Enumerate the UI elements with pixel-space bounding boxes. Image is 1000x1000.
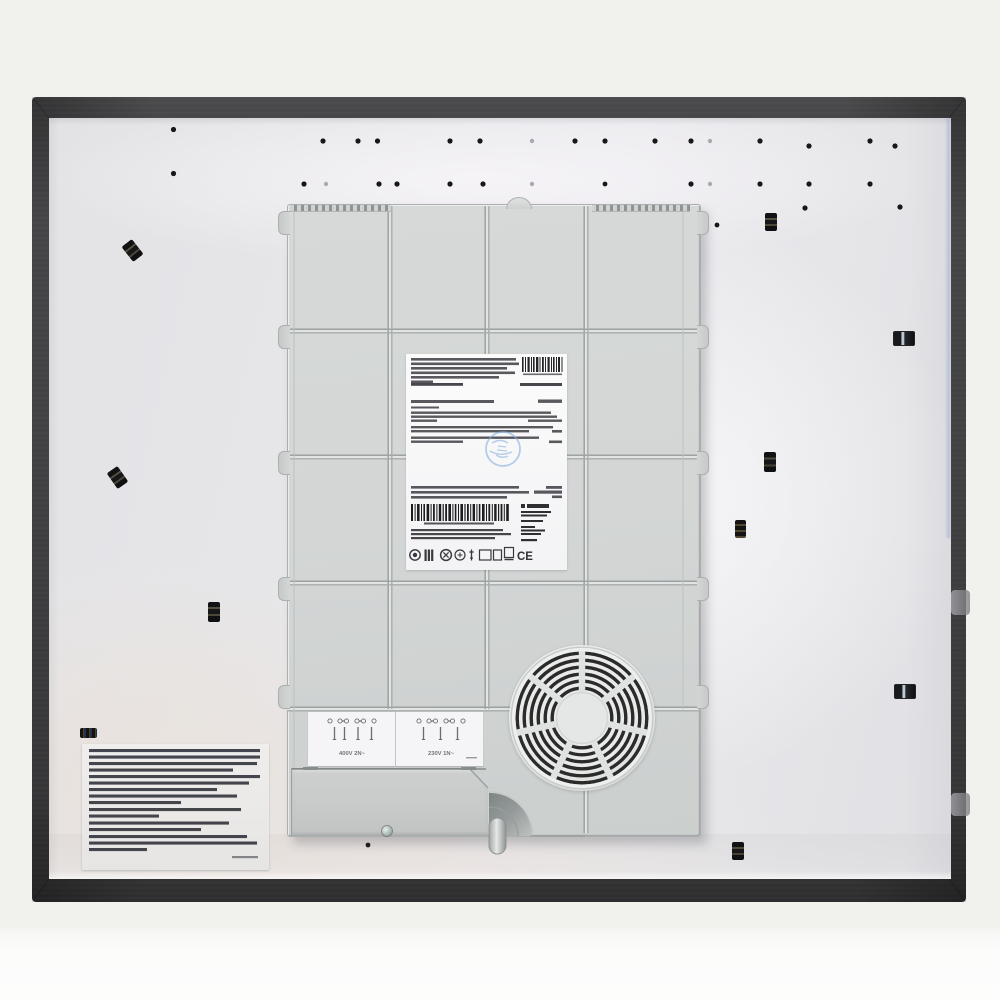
svg-text:CE: CE (517, 551, 533, 563)
svg-text:400V 2N~: 400V 2N~ (339, 751, 366, 757)
svg-text:230V 1N~: 230V 1N~ (428, 751, 455, 757)
